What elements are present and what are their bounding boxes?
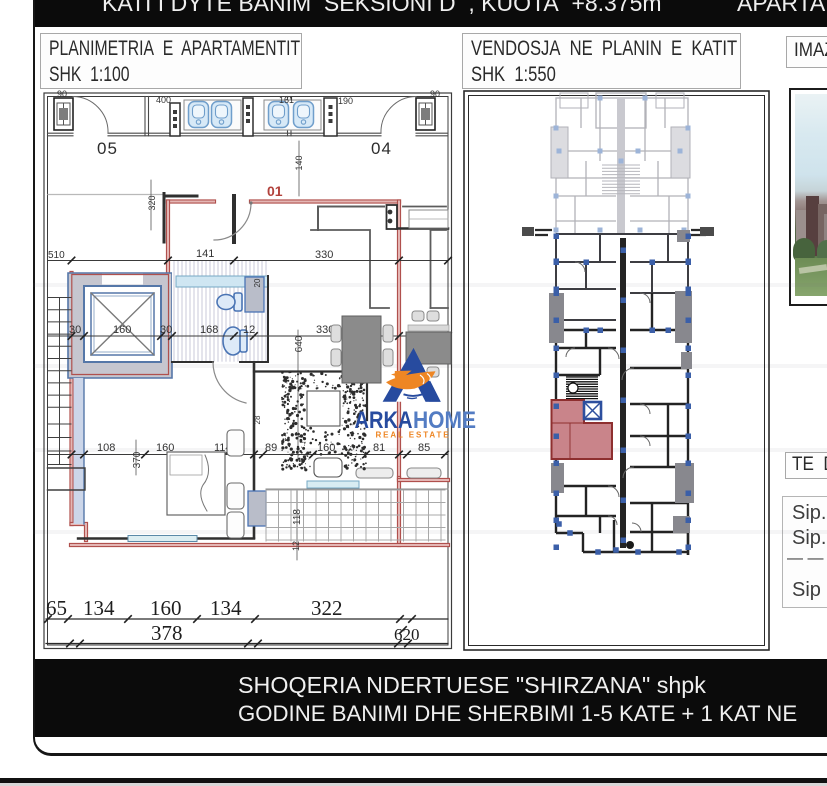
svg-text:370: 370 (132, 451, 143, 468)
svg-text:20: 20 (253, 278, 262, 287)
svg-text:90: 90 (57, 89, 67, 99)
svg-text:30: 30 (69, 324, 81, 336)
svg-text:320: 320 (147, 195, 157, 210)
svg-text:12: 12 (243, 324, 255, 336)
svg-text:12: 12 (291, 541, 301, 551)
svg-text:400: 400 (156, 95, 171, 105)
svg-text:620: 620 (394, 625, 420, 644)
svg-text:134: 134 (83, 596, 115, 620)
svg-text:330: 330 (315, 249, 333, 261)
svg-text:118: 118 (292, 509, 303, 525)
svg-text:141: 141 (196, 248, 214, 260)
svg-text:322: 322 (311, 596, 343, 620)
svg-text:134: 134 (210, 596, 242, 620)
svg-text:378: 378 (151, 621, 183, 645)
svg-text:640: 640 (294, 335, 305, 352)
svg-text:REAL ESTATE: REAL ESTATE (376, 430, 451, 440)
svg-text:65: 65 (46, 596, 67, 620)
svg-text:04: 04 (371, 139, 392, 158)
svg-text:161: 161 (279, 95, 294, 105)
svg-text:90: 90 (430, 89, 440, 99)
svg-text:168: 168 (200, 324, 218, 336)
svg-text:89: 89 (265, 442, 277, 454)
svg-text:160: 160 (150, 596, 182, 620)
svg-text:28: 28 (253, 415, 262, 424)
svg-text:190: 190 (338, 96, 353, 106)
svg-text:30: 30 (160, 324, 172, 336)
svg-text:85: 85 (418, 442, 430, 454)
svg-text:01: 01 (267, 183, 283, 199)
svg-text:05: 05 (97, 139, 118, 158)
svg-text:160: 160 (113, 324, 131, 336)
svg-text:81: 81 (373, 442, 385, 454)
svg-text:108: 108 (97, 442, 115, 454)
svg-text:510: 510 (48, 250, 65, 261)
